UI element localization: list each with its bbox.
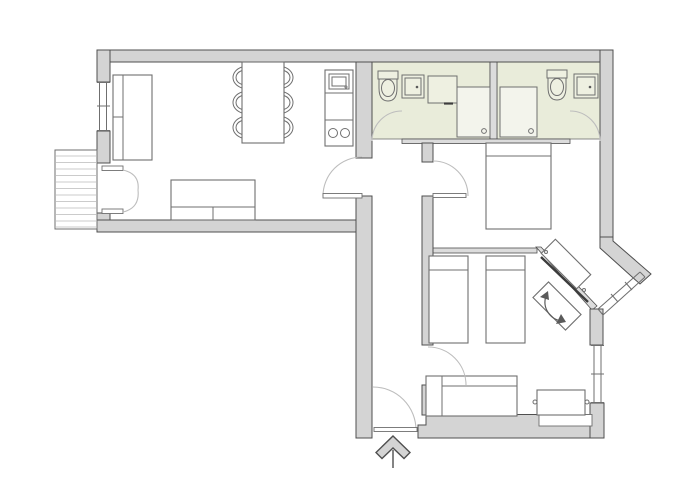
sofa xyxy=(171,180,255,220)
living-room-door-arc xyxy=(323,157,362,196)
shower-2 xyxy=(500,87,537,137)
right-wall-below-bay xyxy=(590,309,603,345)
bedroom-wall-stub xyxy=(422,143,433,162)
french-door-arc-top xyxy=(123,170,138,190)
living-room-door-leaf xyxy=(323,194,362,199)
left-window xyxy=(97,82,110,131)
twin-bedroom xyxy=(426,239,591,416)
top-wall xyxy=(97,50,613,62)
bay-window-tick-1 xyxy=(611,294,618,302)
hall-left-wall-upper xyxy=(356,62,372,158)
side-table xyxy=(533,390,589,415)
toilet-1 xyxy=(378,71,398,101)
radiator-niche xyxy=(539,415,592,427)
chairs-right xyxy=(284,67,293,138)
right-wall xyxy=(600,50,613,243)
bay-window-tick-2 xyxy=(625,282,632,290)
sofa-bed xyxy=(113,75,152,160)
chairs-left xyxy=(233,67,242,138)
left-wall-mid xyxy=(97,131,110,163)
balcony-decking xyxy=(56,156,96,227)
single-bed-1 xyxy=(429,256,468,343)
toilet-2-tank xyxy=(547,70,567,78)
pivot-unit-knob-2 xyxy=(583,289,586,292)
bay-window-line-inner xyxy=(598,272,640,309)
dining-set xyxy=(233,62,293,143)
washbasin-1 xyxy=(402,75,424,98)
bathroom-cabinet xyxy=(428,76,457,103)
shower-1-tray xyxy=(457,87,490,137)
shower-2-tray xyxy=(500,87,537,137)
entrance-door-leaf xyxy=(374,428,417,432)
bench-sofa-outline xyxy=(426,376,517,416)
left-wall-upper xyxy=(97,50,110,82)
kitchen-unit xyxy=(325,70,353,146)
double-bedroom-door-leaf xyxy=(433,194,466,198)
entrance-indicator xyxy=(376,436,410,468)
shower-1 xyxy=(457,87,490,137)
right-window xyxy=(591,345,604,403)
washbasin-1-drain xyxy=(416,86,419,89)
side-table-knob-right xyxy=(585,400,589,404)
bench-sofa xyxy=(426,376,517,416)
living-room-bottom-wall xyxy=(97,220,357,232)
pivot-unit xyxy=(533,239,591,330)
french-door-leaf-bottom xyxy=(102,209,123,214)
side-table-top xyxy=(537,390,585,415)
floor-plan-canvas xyxy=(0,0,700,500)
double-bedroom-door-arc xyxy=(433,161,468,196)
balcony-outline xyxy=(55,150,97,229)
double-bedroom xyxy=(486,143,551,229)
french-door-arc-bottom xyxy=(123,190,138,212)
diagonal-corner-wall xyxy=(600,237,651,284)
dining-table xyxy=(242,62,284,143)
washbasin-2 xyxy=(574,74,598,98)
living-room xyxy=(113,62,353,220)
single-bed-2 xyxy=(486,256,525,343)
washbasin-2-outline xyxy=(574,74,598,98)
balcony xyxy=(55,150,97,229)
washbasin-2-drain xyxy=(589,86,592,89)
bay-window-line-outer xyxy=(603,277,645,315)
wall-between-bathrooms xyxy=(490,62,497,139)
side-table-knob-left xyxy=(533,400,537,404)
entrance-door-arc xyxy=(373,387,416,430)
floor-plan-svg xyxy=(0,0,700,500)
french-door-leaf-top xyxy=(102,166,123,171)
toilet-2 xyxy=(547,70,567,100)
toilet-1-tank xyxy=(378,71,398,79)
hall-left-wall-lower xyxy=(356,196,372,438)
twin-room-top-wall xyxy=(433,248,537,253)
